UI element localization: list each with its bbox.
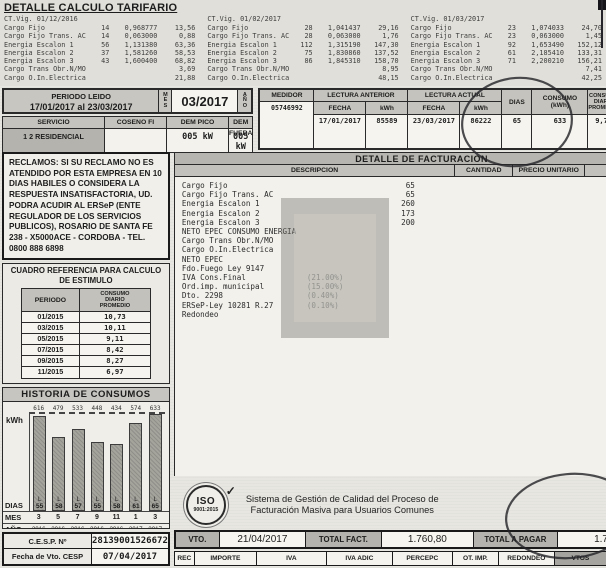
facturacion-row: Energia Escalon 3 200 383,73 (175, 218, 606, 227)
estimulo-row: 09/2015 8,27 (22, 356, 150, 367)
facturacion-row-price (415, 255, 503, 264)
tarifario-row-qty: 56 (89, 41, 109, 49)
cesp-table: C.E.S.P. Nº 28139001526672 Fecha de Vto.… (2, 532, 170, 566)
tarifario-row-amount: 13,56 (157, 24, 195, 32)
col-descripcion: DESCRIPCION (175, 165, 454, 176)
facturacion-row-price (415, 190, 503, 199)
tarifario-row-label: Energia Escalon 2 (4, 49, 89, 57)
lectura-actual-fecha: 23/03/2017 (408, 115, 460, 148)
bar-days: 55 (94, 503, 101, 510)
ano-vertical-text: AÑO (242, 93, 248, 110)
facturacion-row: Cargo Trans Obr.N/MO 20,05 (175, 236, 606, 245)
vto-label: VTO. (176, 532, 220, 547)
tarifario-row-label: Energia Escalon 1 (207, 41, 292, 49)
iso-text-line1: Sistema de Gestión de Calidad del Proces… (246, 494, 439, 506)
estimulo-row: 05/2015 9,11 (22, 334, 150, 345)
tarifario-row-price: 0,063000 (109, 32, 157, 40)
tarifario-row: Cargo Trans Obr.N/MO 8,95 (207, 65, 398, 73)
tarifario-row-price: 1,041437 (313, 24, 361, 32)
tarifario-row-price: 1,074033 (516, 24, 564, 32)
coseno-value (105, 129, 167, 152)
facturacion-row: Fdo.Fuego Ley 9147 14,00 (175, 264, 606, 273)
facturacion-row: Energia Escalon 1 260 362,78 (175, 199, 606, 208)
tarifario-row: Cargo Fijo Trans. AC 23 0,063000 1,45 (411, 32, 602, 40)
estimulo-row: 01/2015 10,73 (22, 312, 150, 323)
tarifario-row-label: Energia Escalon 3 (4, 57, 89, 65)
cesp-vto-value: 07/04/2017 (92, 549, 168, 564)
values-gutter (3, 405, 29, 412)
estimulo-row-consumo: 10,11 (80, 323, 150, 333)
facturacion-row-amount: 67,42 (503, 181, 606, 190)
tarifario-rows: Cargo Fijo 28 1,041437 29,16 Cargo Fijo … (207, 24, 398, 82)
iso-9001-stamp-icon: ISO 9001:2015 ✓ (184, 484, 236, 526)
tarifario-row-price: 0,063000 (516, 32, 564, 40)
iso-year: 9001:2015 (193, 507, 218, 513)
col-cantidad: CANTIDAD (454, 165, 512, 176)
estimulo-row-periodo: 05/2015 (22, 334, 80, 344)
mes-cell: 3 (29, 512, 48, 523)
tarifario-row-amount: 3,69 (157, 65, 195, 73)
facturacion-row-price (415, 273, 503, 282)
scan-watermark (281, 198, 389, 338)
footer-header-cell: REC (175, 552, 195, 565)
facturacion-row-price (415, 282, 503, 291)
tarifario-row: Energia Escalon 1 112 1,315190 147,30 (207, 41, 398, 49)
tarifario-row-qty (89, 65, 109, 73)
tarifario-row-label: Cargo Fijo (4, 24, 89, 32)
tarifario-row-qty: 28 (293, 24, 313, 32)
lectura-actual-kwh: 86222 (460, 115, 502, 148)
footer-header-cell: IVA (257, 552, 327, 565)
tarifario-row-amount: 137,52 (361, 49, 399, 57)
periodo-leido-label: PERIODO LEIDO (4, 90, 158, 101)
facturacion-row: Cargo Fijo 65 67,42 (175, 181, 606, 190)
bar-days: 55 (36, 503, 43, 510)
estimulo-table-header: PERIODO CONSUMO DIARIO PROMEDIO (22, 289, 150, 312)
dem-pico-header: DEM PICO (167, 117, 229, 129)
dias-row-label: DIAS (5, 501, 23, 510)
totals-row: VTO. 21/04/2017 TOTAL FACT. 1.760,80 TOT… (174, 530, 606, 549)
tarifario-row-amount: 48,15 (361, 74, 399, 82)
tarifario-row-price (516, 74, 564, 82)
historia-title: HISTORIA DE CONSUMOS (3, 388, 169, 402)
facturacion-row-amount: 14,00 (503, 264, 606, 273)
medidor-table: MEDIDOR LECTURA ANTERIOR LECTURA ACTUAL … (258, 88, 606, 150)
tarifario-vigencia: CT.Vig. 01/03/2017 (411, 15, 602, 23)
lectura-anterior-kwh: 85589 (366, 115, 408, 148)
footer-header-cell: OT. IMP. (453, 552, 499, 565)
fecha-anterior-header: FECHA (314, 102, 366, 115)
tarifario-row-amount: 63,36 (157, 41, 195, 49)
mes-cell: 5 (48, 512, 67, 523)
facturacion-row-label: Cargo Fijo (175, 181, 307, 190)
estimulo-row-periodo: 07/2015 (22, 345, 80, 355)
tarifario-row: Energia Escalon 1 56 1,131380 63,36 (4, 41, 195, 49)
footer-header-cell: IVA ADIC (327, 552, 393, 565)
footer-header-cell: IMPORTE (195, 552, 257, 565)
bars-row: L55L58L57L55L58L61L65 (29, 412, 165, 511)
tarifario-row-qty: 43 (89, 57, 109, 65)
facturacion-spacer (175, 321, 606, 476)
estimulo-row-consumo: 8,42 (80, 345, 150, 355)
ano-cells: 2016201620162016201620172017 (29, 524, 165, 529)
facturacion-row: Cargo O.In.Electrica 112,28 (175, 245, 606, 254)
col-precio-unitario: PRECIO UNITARIO (512, 165, 584, 176)
footer-header-cell: REDONDEO (499, 552, 555, 565)
estimulo-row-periodo: 09/2015 (22, 356, 80, 366)
tarifario-row-qty (293, 74, 313, 82)
facturacion-row-price (415, 209, 503, 218)
consumption-bar: L61 (129, 423, 142, 511)
dias-header: DIAS (502, 90, 532, 115)
periodo-rango: 17/01/2017 al 23/03/2017 (4, 102, 158, 112)
tarifario-blocks: CT.Vig. 01/12/2016 Cargo Fijo 14 0,96877… (4, 15, 602, 82)
estimulo-row-consumo: 9,11 (80, 334, 150, 344)
ano-row: AÑO 2016201620162016201620172017 (3, 523, 169, 529)
periodo-leido-box: PERIODO LEIDO 17/01/2017 al 23/03/2017 M… (2, 88, 253, 114)
facturacion-row-price (415, 227, 503, 236)
estimulo-row-consumo: 10,73 (80, 312, 150, 322)
bar-days: 58 (55, 503, 62, 510)
mes-row: MES 35791113 (3, 511, 169, 523)
ano-cell: 2016 (107, 524, 126, 529)
tarifario-row-amount: 42,25 (564, 74, 602, 82)
kwh-anterior-header: kWh (366, 102, 408, 115)
tarifario-row: Energia Escalon 2 61 2,185410 133,31 (411, 49, 602, 57)
tarifario-row: Energia Escalon 3 43 1,600400 68,82 (4, 57, 195, 65)
medidor-numero: 05746992 (260, 102, 314, 115)
bar-days: 65 (152, 503, 159, 510)
medidor-header: MEDIDOR (260, 90, 314, 102)
estimulo-col-consumo-l3: PROMEDIO (80, 303, 150, 309)
facturacion-row: Ord.imp. municipal (15.00%) 191,95 (175, 282, 606, 291)
tarifario-row-price: 1,600400 (109, 57, 157, 65)
tarifario-row: Energia Escalon 2 75 1,830860 137,52 (207, 49, 398, 57)
facturacion-row-price (415, 181, 503, 190)
facturacion-row-amount: 112,28 (503, 245, 606, 254)
tarifario-row: Cargo Fijo Trans. AC 14 0,063000 0,88 (4, 32, 195, 40)
ano-cell: 2016 (87, 524, 106, 529)
tarifario-row-qty: 92 (496, 41, 516, 49)
tarifario-row-qty: 14 (89, 24, 109, 32)
tarifario-row-amount: 68,82 (157, 57, 195, 65)
right-column: DETALLE DE FACTURACION DESCRIPCION CANTI… (174, 152, 606, 566)
tarifario-row-amount: 1,76 (361, 32, 399, 40)
iso-text-line2: Facturación Masiva para Usuarios Comunes (246, 505, 439, 517)
fecha-actual-header: FECHA (408, 102, 460, 115)
servicio-table: SERVICIO COSENO FI DEM PICO DEM FUERA 1 … (2, 116, 253, 153)
tarifario-row: Cargo Trans Obr.N/MO 3,69 (4, 65, 195, 73)
bar-column: L58 (107, 444, 126, 511)
tarifario-row: Cargo Trans Obr.N/MO 7,41 (411, 65, 602, 73)
tarifario-row-amount: 158,70 (361, 57, 399, 65)
tarifario-row-price: 1,845310 (313, 57, 361, 65)
tarifario-row-label: Energia Escalon 3 (207, 57, 292, 65)
mes-cells: 35791113 (29, 512, 165, 523)
facturacion-row-price (415, 236, 503, 245)
consumption-bar: L58 (52, 437, 65, 511)
bar-value-label: 574 (126, 405, 145, 412)
tarifario-row-label: Cargo O.In.Electrica (411, 74, 496, 82)
tarifario-row: Cargo Fijo 28 1,041437 29,16 (207, 24, 398, 32)
tarifario-rows: Cargo Fijo 23 1,074033 24,70 Cargo Fijo … (411, 24, 602, 82)
bar-value-label: 434 (107, 405, 126, 412)
tarifario-row-qty (293, 65, 313, 73)
facturacion-row-price (415, 199, 503, 208)
tarifario-row-amount: 58,53 (157, 49, 195, 57)
tarifario-row-amount: 133,31 (564, 49, 602, 57)
promedio-header-l3: PROMEDIO (588, 105, 606, 111)
cesp-vto-label: Fecha de Vto. CESP (4, 549, 92, 564)
estimulo-title-1: CUADRO REFERENCIA PARA CALCULO (3, 264, 169, 276)
bar-column: L61 (126, 423, 145, 511)
facturacion-row-price (415, 291, 503, 300)
tarifario-row-label: Cargo O.In.Electrica (4, 74, 89, 82)
mes-vertical-label: MES (159, 90, 172, 112)
lectura-anterior-fecha: 17/01/2017 (314, 115, 366, 148)
facturacion-row-amount: 268,74 (503, 273, 606, 282)
lectura-anterior-header: LECTURA ANTERIOR (314, 90, 408, 102)
tarifario-row-amount: 7,41 (564, 65, 602, 73)
bar-values-row: 616479533448434574633 (3, 402, 169, 412)
total-fact-value: 1.760,80 (382, 532, 474, 547)
tarifario-row-label: Cargo Trans Obr.N/MO (207, 65, 292, 73)
bar-column: L58 (49, 437, 68, 511)
tarifario-row-qty: 71 (496, 57, 516, 65)
tarifario-row-price: 1,131380 (109, 41, 157, 49)
tarifario-row-price: 1,581260 (109, 49, 157, 57)
consumption-chart: kWh DIAS L55L58L57L55L58L61L65 (3, 412, 169, 511)
estimulo-col-periodo: PERIODO (22, 289, 80, 311)
bar-days: 61 (132, 503, 139, 510)
dem-fuera-value: 005 kW (229, 129, 252, 152)
facturacion-row-price (415, 301, 503, 310)
tarifario-row-label: Cargo Fijo (207, 24, 292, 32)
tarifario-row-price: 0,968777 (109, 24, 157, 32)
promedio-header: CONSUMO DIARIO PROMEDIO (588, 90, 606, 115)
estimulo-box: CUADRO REFERENCIA PARA CALCULO DE ESTIMU… (2, 263, 170, 384)
tarifario-row-qty: 86 (293, 57, 313, 65)
ano-row-label: AÑO (3, 524, 29, 529)
ano-cell: 2016 (68, 524, 87, 529)
facturacion-row-amount: 191,95 (503, 282, 606, 291)
tarifario-vigencia: CT.Vig. 01/12/2016 (4, 15, 195, 23)
ano-vertical-label: AÑO (238, 90, 251, 112)
consumption-bar: L57 (72, 429, 85, 511)
estimulo-row-periodo: 01/2015 (22, 312, 80, 322)
facturacion-row-amount: 0,02 (503, 310, 606, 319)
tarifario-row-qty: 61 (496, 49, 516, 57)
col-importe: IMPORTE $ (584, 165, 606, 176)
estimulo-row-periodo: 03/2015 (22, 323, 80, 333)
tarifario-row-amount: 29,16 (361, 24, 399, 32)
facturacion-row-amount: 362,78 (503, 199, 606, 208)
servicio-header: SERVICIO (3, 117, 105, 129)
facturacion-row-amount: 5,11 (503, 291, 606, 300)
tarifario-row-qty: 23 (496, 24, 516, 32)
tarifario-row-label: Cargo Trans Obr.N/MO (411, 65, 496, 73)
dias-value: 65 (502, 115, 532, 148)
bar-value-label: 479 (48, 405, 67, 412)
tarifario-row-label: Cargo Fijo Trans. AC (207, 32, 292, 40)
tarifario-row-qty (496, 65, 516, 73)
bar-column: L57 (69, 429, 88, 511)
tarifario-row-price: 0,063000 (313, 32, 361, 40)
periodo-tables: PERIODO LEIDO 17/01/2017 al 23/03/2017 M… (2, 88, 253, 150)
ano-cell: 2016 (48, 524, 67, 529)
facturacion-row-amount: 383,73 (503, 218, 606, 227)
tarifario-row-amount: 147,30 (361, 41, 399, 49)
tarifario-block-2: CT.Vig. 01/02/2017 Cargo Fijo 28 1,04143… (207, 15, 398, 82)
tarifario-vigencia: CT.Vig. 01/02/2017 (207, 15, 398, 23)
tarifario-row-qty: 75 (293, 49, 313, 57)
tarifario-block-3: CT.Vig. 01/03/2017 Cargo Fijo 23 1,07403… (411, 15, 602, 82)
facturacion-row-amount: 1,27 (503, 301, 606, 310)
tarifario-row: Cargo Fijo Trans. AC 28 0,063000 1,76 (207, 32, 398, 40)
dem-pico-value: 005 kW (167, 129, 229, 152)
cesp-nro-row: C.E.S.P. Nº 28139001526672 (4, 534, 168, 549)
tarifario-row-label: Cargo Trans Obr.N/MO (4, 65, 89, 73)
tarifario-row-label: Energia Escalon 1 (411, 41, 496, 49)
facturacion-row: NETO EPEC 1.279,71 (175, 255, 606, 264)
tarifario-section: DETALLE CALCULO TARIFARIO CT.Vig. 01/12/… (0, 0, 606, 86)
footer-header-cell: PERCEPC (393, 552, 453, 565)
dem-fuera-header: DEM FUERA (229, 117, 252, 129)
medidor-empty-cell (260, 115, 314, 148)
estimulo-col-consumo: CONSUMO DIARIO PROMEDIO (80, 289, 150, 311)
historia-box: HISTORIA DE CONSUMOS 6164795334484345746… (2, 387, 170, 529)
ano-cell: 2017 (126, 524, 145, 529)
bar-column: L65 (146, 414, 165, 511)
tarifario-row-qty: 28 (293, 32, 313, 40)
facturacion-row-price (415, 310, 503, 319)
facturacion-row-amount: 329,36 (503, 209, 606, 218)
facturacion-row-amount: 20,05 (503, 236, 606, 245)
scan-watermark-inner (294, 214, 376, 322)
estimulo-row-consumo: 8,27 (80, 356, 150, 366)
tarifario-block-1: CT.Vig. 01/12/2016 Cargo Fijo 14 0,96877… (4, 15, 195, 82)
estimulo-title-2: DE ESTIMULO (3, 276, 169, 286)
consumption-bar: L55 (91, 442, 104, 511)
promedio-value: 9,73 (588, 115, 606, 148)
tarifario-row-price: 1,653490 (516, 41, 564, 49)
facturacion-header: DESCRIPCION CANTIDAD PRECIO UNITARIO IMP… (175, 165, 606, 177)
tarifario-row-label: Energia Escalon 3 (411, 57, 496, 65)
tarifario-row-qty: 14 (89, 32, 109, 40)
tarifario-row: Cargo O.In.Electrica 42,25 (411, 74, 602, 82)
bar-column: L55 (30, 416, 49, 511)
iso-certification: ISO 9001:2015 ✓ Sistema de Gestión de Ca… (174, 479, 606, 530)
facturacion-row: NETO EPEC CONSUMO ENERGIA 1.147,38 (175, 227, 606, 236)
tarifario-row-qty (89, 74, 109, 82)
mes-cell: 9 (87, 512, 106, 523)
consumo-header-l2: (kWh) (551, 102, 569, 109)
bill-page: DETALLE CALCULO TARIFARIO CT.Vig. 01/12/… (0, 0, 606, 568)
facturacion-title: DETALLE DE FACTURACION (175, 152, 606, 165)
body: RECLAMOS: SI SU RECLAMO NO ES ATENDIDO P… (0, 152, 606, 566)
tarifario-row-label: Energia Escalon 1 (4, 41, 89, 49)
cesp-nro-label: C.E.S.P. Nº (4, 534, 92, 548)
tarifario-row-amount: 156,21 (564, 57, 602, 65)
tarifario-row: Cargo Fijo 23 1,074033 24,70 (411, 24, 602, 32)
bar-value-label: 533 (68, 405, 87, 412)
kwh-axis-label: kWh (6, 416, 23, 425)
mes-cell: 11 (107, 512, 126, 523)
mes-row-label: MES (3, 512, 29, 523)
tarifario-row-label: Cargo Fijo Trans. AC (4, 32, 89, 40)
facturacion-row-price (415, 245, 503, 254)
tarifario-row-price (516, 65, 564, 73)
total-pagar-label: TOTAL A PAGAR (474, 532, 558, 547)
tarifario-row: Energia Escalon 3 86 1,845310 158,70 (207, 57, 398, 65)
consumption-bar: L58 (110, 444, 123, 511)
facturacion-row: ERSeP-Ley 10281 R.27 (0.10%) 1,27 (175, 301, 606, 310)
tarifario-row-price (109, 65, 157, 73)
tarifario-row-label: Energia Escalon 2 (411, 49, 496, 57)
bar-column: L55 (88, 442, 107, 511)
tarifario-row-amount: 152,12 (564, 41, 602, 49)
total-pagar-value: 1.760,80 (558, 532, 606, 547)
reclamos-box: RECLAMOS: SI SU RECLAMO NO ES ATENDIDO P… (2, 152, 170, 260)
vals-cells: 616479533448434574633 (29, 405, 165, 412)
consumo-value: 633 (532, 115, 588, 148)
footer-header-row: RECIMPORTEIVAIVA ADICPERCEPCOT. IMP.REDO… (174, 551, 606, 566)
mes-vertical-text: MES (162, 93, 168, 110)
tarifario-row: Energia Escalon 3 71 2,200210 156,21 (411, 57, 602, 65)
facturacion-row-price (415, 264, 503, 273)
mes-cell: 3 (145, 512, 164, 523)
tarifario-row-label: Cargo O.In.Electrica (207, 74, 292, 82)
kwh-actual-header: kWh (460, 102, 502, 115)
facturacion-row-amount: 4,09 (503, 190, 606, 199)
ano-cell: 2017 (145, 524, 164, 529)
tarifario-row-price: 1,315190 (313, 41, 361, 49)
estimulo-row-periodo: 11/2015 (22, 367, 80, 378)
tarifario-row-qty: 112 (293, 41, 313, 49)
bar-days: 57 (75, 503, 82, 510)
tarifario-row-amount: 21,88 (157, 74, 195, 82)
periodo-leido: PERIODO LEIDO 17/01/2017 al 23/03/2017 (4, 90, 159, 112)
tarifario-row: Cargo O.In.Electrica 21,88 (4, 74, 195, 82)
tarifario-row-price: 2,185410 (516, 49, 564, 57)
total-fact-label: TOTAL FACT. (306, 532, 382, 547)
consumo-header-l1: CONSUMO (543, 95, 577, 102)
mes-cell: 7 (68, 512, 87, 523)
tarifario-row-price (313, 74, 361, 82)
scan-edge-line (601, 0, 603, 48)
facturacion-row: Dto. 2298 (0.40%) 5,11 (175, 291, 606, 300)
bar-value-label: 633 (145, 405, 164, 412)
facturacion-rows: Cargo Fijo 65 67,42 Cargo Fijo Trans. AC… (175, 177, 606, 321)
estimulo-row: 07/2015 8,42 (22, 345, 150, 356)
ano-cell: 2016 (29, 524, 48, 529)
tarifario-row-qty (496, 74, 516, 82)
facturacion-row-price (415, 218, 503, 227)
coseno-header: COSENO FI (105, 117, 167, 129)
tarifario-row-price (313, 65, 361, 73)
tarifario-row-price: 2,200210 (516, 57, 564, 65)
consumo-header: CONSUMO (kWh) (532, 90, 588, 115)
iso-text: Sistema de Gestión de Calidad del Proces… (246, 494, 439, 517)
consumption-bar: L65 (149, 414, 162, 511)
tarifario-row-price (109, 74, 157, 82)
tarifario-row-label: Cargo Fijo (411, 24, 496, 32)
tarifario-row-price: 1,830860 (313, 49, 361, 57)
facturacion-row: Cargo Fijo Trans. AC 65 4,09 (175, 190, 606, 199)
cesp-nro-value: 28139001526672 (92, 534, 168, 548)
chart-gutter: kWh DIAS (3, 412, 29, 511)
tarifario-row: Energia Escalon 2 37 1,581260 58,53 (4, 49, 195, 57)
